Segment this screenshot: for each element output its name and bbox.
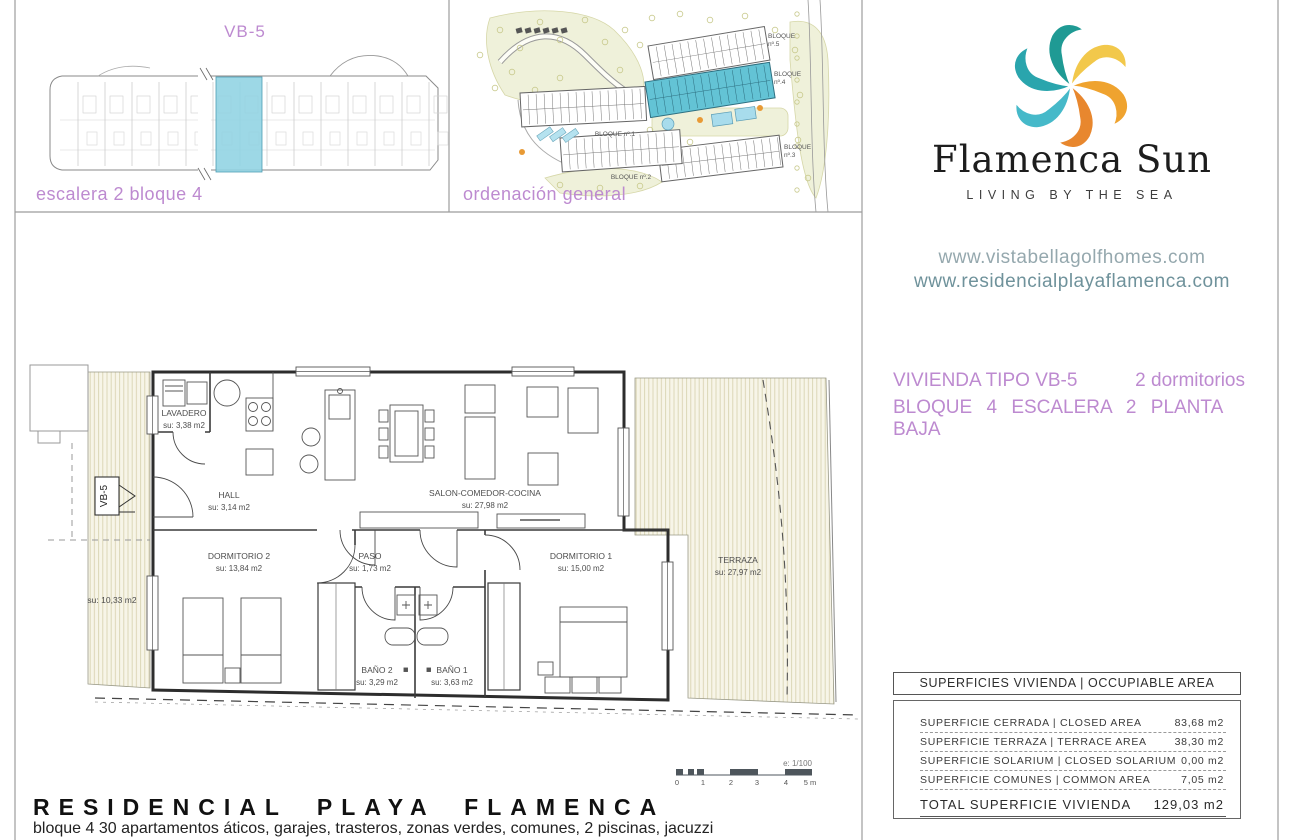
row-value: 38,30 m2 xyxy=(1175,736,1224,748)
unit-marker-label: VB-5 xyxy=(99,484,110,507)
row-label: SUPERFICIE CERRADA | CLOSED AREA xyxy=(920,717,1142,729)
row-value: 83,68 m2 xyxy=(1175,717,1224,729)
unit-info-line1: VIVIENDA TIPO VB-5 2 dormitorios xyxy=(893,370,1245,392)
room-label: TERRAZA xyxy=(718,555,758,565)
scale-tick: 0 xyxy=(675,778,679,787)
row-value: 0,00 m2 xyxy=(1181,755,1224,767)
block4-label: BLOQUE xyxy=(774,71,802,78)
scale-tick: 3 xyxy=(755,778,759,787)
total-label: TOTAL SUPERFICIE VIVIENDA xyxy=(920,797,1131,812)
room-area: su: 3,29 m2 xyxy=(356,678,398,687)
scale-label: e: 1/100 xyxy=(783,759,812,768)
room-label: LAVADERO xyxy=(161,408,206,418)
room-label: DORMITORIO 2 xyxy=(208,551,270,561)
row-label: SUPERFICIE COMUNES | COMMON AREA xyxy=(920,774,1150,786)
row-label: SUPERFICIE TERRAZA | TERRACE AREA xyxy=(920,736,1147,748)
room-label: BAÑO 1 xyxy=(436,665,467,675)
highlighted-unit xyxy=(216,77,262,172)
project-title: RESIDENCIAL PLAYA FLAMENCA xyxy=(33,794,665,821)
room-label: HALL xyxy=(218,490,240,500)
bedroom1-furniture xyxy=(538,607,627,693)
room-label: BAÑO 2 xyxy=(361,665,392,675)
site-plan-caption: ordenación general xyxy=(463,184,626,205)
room-area: su: 15,00 m2 xyxy=(558,564,605,573)
terrace-hatch xyxy=(635,378,834,704)
apartment-plan: VB-5 LAVADERO su: 3,38 m2 HALL su: 3,14 … xyxy=(30,365,858,787)
areas-table: SUPERFICIE CERRADA | CLOSED AREA 83,68 m… xyxy=(893,700,1241,819)
scale-tick: 5 m xyxy=(804,778,817,787)
room-label: SALON-COMEDOR-COCINA xyxy=(429,488,541,498)
table-row: SUPERFICIE CERRADA | CLOSED AREA 83,68 m… xyxy=(920,714,1226,733)
unit-location: BLOQUE 4 ESCALERA 2 PLANTA BAJA xyxy=(893,397,1245,441)
room-label: DORMITORIO 1 xyxy=(550,551,612,561)
site-block-1 xyxy=(520,86,647,126)
room-area: su: 27,98 m2 xyxy=(462,501,509,510)
table-total-row: TOTAL SUPERFICIE VIVIENDA 129,03 m2 xyxy=(920,790,1226,817)
scale-tick: 2 xyxy=(729,778,733,787)
bathroom-fixtures xyxy=(385,595,448,672)
site-plan-drawing: BLOQUE nº.5 BLOQUE nº.4 BLOQUE nº.3 BLOQ… xyxy=(477,0,829,212)
room-area: su: 1,73 m2 xyxy=(349,564,391,573)
row-value: 7,05 m2 xyxy=(1181,774,1224,786)
room-area: su: 3,38 m2 xyxy=(163,421,205,430)
bedroom2-furniture xyxy=(183,598,281,683)
project-subtitle: bloque 4 30 apartamentos áticos, garajes… xyxy=(33,820,713,838)
total-value: 129,03 m2 xyxy=(1154,797,1224,812)
website-link-2[interactable]: www.residencialplayaflamenca.com xyxy=(872,271,1272,293)
unit-type: VIVIENDA TIPO VB-5 xyxy=(893,370,1077,392)
block5-label-2: nº.5 xyxy=(768,41,780,48)
scale-tick: 4 xyxy=(784,778,788,787)
block-plan-drawing xyxy=(50,55,448,180)
block1-label: BLOQUE nº.1 xyxy=(595,131,636,138)
block-plan-title: VB-5 xyxy=(150,22,340,42)
unit-bedrooms: 2 dormitorios xyxy=(1135,370,1245,392)
table-row: SUPERFICIE SOLARIUM | CLOSED SOLARIUM 0,… xyxy=(920,752,1226,771)
side-terrace-hatch xyxy=(88,372,150,688)
room-area: su: 3,14 m2 xyxy=(208,503,250,512)
row-label: SUPERFICIE SOLARIUM | CLOSED SOLARIUM xyxy=(920,755,1176,767)
room-label: PASO xyxy=(359,551,382,561)
flamenca-sun-logo-icon xyxy=(1007,17,1135,155)
block3-label: BLOQUE xyxy=(784,144,812,151)
brand-tagline: LIVING BY THE SEA xyxy=(872,188,1272,202)
brand-name: Flamenca Sun xyxy=(872,138,1272,181)
areas-table-header: SUPERFICIES VIVIENDA | OCCUPIABLE AREA xyxy=(893,672,1241,695)
website-link-1[interactable]: www.vistabellagolfhomes.com xyxy=(872,247,1272,269)
scale-bar: e: 1/100 0 1 2 3 4 5 m xyxy=(675,759,816,787)
scale-tick: 1 xyxy=(701,778,705,787)
table-row: SUPERFICIE COMUNES | COMMON AREA 7,05 m2 xyxy=(920,771,1226,790)
block5-label: BLOQUE xyxy=(768,33,796,40)
block-plan-caption: escalera 2 bloque 4 xyxy=(36,184,203,205)
block4-label-2: nº.4 xyxy=(774,79,786,86)
table-row: SUPERFICIE TERRAZA | TERRACE AREA 38,30 … xyxy=(920,733,1226,752)
room-area: su: 27,97 m2 xyxy=(715,568,762,577)
room-area: su: 13,84 m2 xyxy=(216,564,263,573)
block2-label: BLOQUE nº.2 xyxy=(611,174,652,181)
room-area: su: 3,63 m2 xyxy=(431,678,473,687)
block3-label-2: nº.3 xyxy=(784,152,796,159)
side-terrace-area: su: 10,33 m2 xyxy=(87,595,136,605)
